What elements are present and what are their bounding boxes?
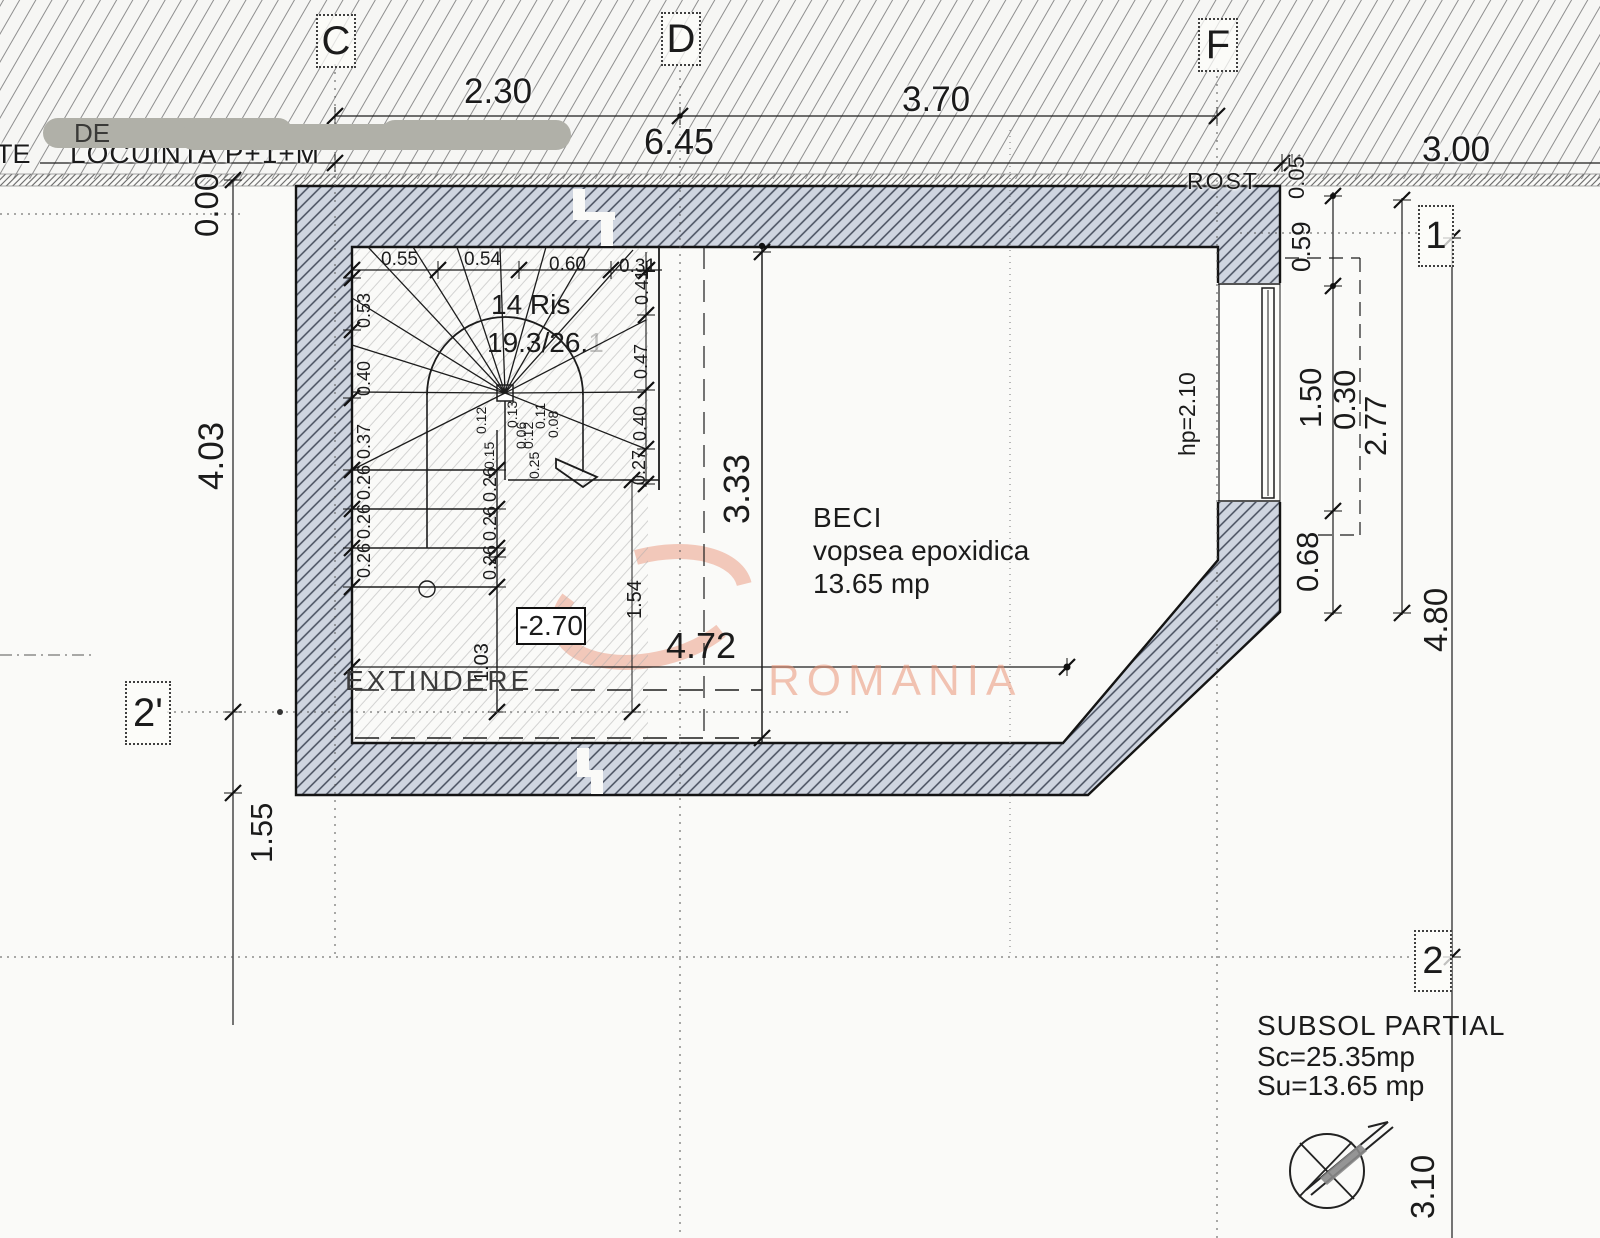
- grid-marker-2p: 2': [125, 681, 171, 745]
- dim-1-54: 1.54: [625, 580, 645, 619]
- center-dim: 0.12: [474, 407, 488, 434]
- floor-plan-page: TE LOCUINTA P+1+M 2.30 3.70 6.45 3.00 RO…: [0, 0, 1600, 1238]
- dim-6-45: 6.45: [644, 124, 714, 160]
- dim-4-03: 4.03: [194, 422, 229, 490]
- riser-dim: 0.26: [481, 467, 499, 502]
- grid-marker-d-label: D: [667, 17, 696, 62]
- dim-2-77: 2.77: [1360, 396, 1391, 456]
- basement-window: [1216, 283, 1284, 502]
- center-dim: 0.25: [527, 452, 541, 479]
- rost-joint-label: ROST: [1187, 170, 1259, 193]
- tread-dim: 0.55: [381, 250, 418, 269]
- grid-marker-d: D: [661, 12, 701, 66]
- dim-3-70: 3.70: [902, 82, 970, 117]
- dim-0-30: 0.30: [1329, 370, 1360, 430]
- level-marker-value: -2.70: [519, 612, 583, 640]
- covered-text-fragment: DE: [74, 120, 110, 146]
- north-arrow-icon: [1290, 1122, 1393, 1208]
- dim-1-55: 1.55: [246, 803, 277, 863]
- dim-1-50: 1.50: [1295, 368, 1326, 428]
- grid-marker-1-label: 1: [1425, 215, 1446, 258]
- level-marker-box: -2.70: [516, 607, 586, 645]
- riser-dim: 0.26: [355, 543, 373, 578]
- dim-4-72: 4.72: [666, 628, 736, 664]
- winder-dim: 0.47: [632, 344, 650, 379]
- riser-dim: 0.26: [355, 504, 373, 539]
- titleblock-built-area: Sc=25.35mp: [1257, 1043, 1415, 1071]
- extindere-label: EXTINDERE: [345, 667, 532, 695]
- level-0-00: 0.00: [190, 173, 223, 237]
- riser-dim: 0.26: [481, 545, 499, 580]
- stair-ratio-value: 19.3/26.: [487, 327, 588, 358]
- riser-dim: 0.26: [355, 465, 373, 500]
- tread-dim: 0.54: [464, 250, 501, 269]
- dim-3-00: 3.00: [1422, 132, 1490, 167]
- dim-3-33: 3.33: [719, 454, 755, 524]
- winder-dim: 0.41: [633, 270, 651, 305]
- dim-4-80: 4.80: [1419, 588, 1452, 652]
- room-name: BECI: [813, 504, 882, 532]
- redaction-mark: [380, 120, 571, 150]
- titleblock-usable-area: Su=13.65 mp: [1257, 1072, 1424, 1100]
- tread-dim: 0.60: [549, 255, 586, 274]
- riser-dim: 0.40: [355, 361, 373, 396]
- dim-3-10: 3.10: [1406, 1155, 1439, 1219]
- winder-dim: 0.40: [631, 406, 649, 441]
- titleblock-title: SUBSOL PARTIAL: [1257, 1012, 1505, 1040]
- stair-risers-label: 14 Ris: [491, 291, 570, 319]
- grid-marker-2: 2: [1414, 930, 1452, 992]
- grid-marker-2-label: 2: [1422, 940, 1443, 983]
- dim-2-30: 2.30: [464, 74, 532, 109]
- room-finish: vopsea epoxidica: [813, 537, 1029, 565]
- dim-0-68: 0.68: [1292, 532, 1323, 592]
- riser-dim: 0.37: [355, 424, 373, 459]
- stair-ratio-faded-digit: 1: [588, 327, 604, 358]
- romania-watermark: ROMANIA: [768, 656, 1022, 706]
- parapet-height-label: hp=2.10: [1176, 372, 1199, 456]
- riser-dim: 0.53: [355, 293, 373, 328]
- dim-0-05: 0.05: [1286, 156, 1308, 199]
- grid-marker-c: C: [316, 14, 356, 68]
- winder-dim: 0.27: [630, 450, 648, 485]
- grid-marker-2p-label: 2': [133, 691, 163, 736]
- grid-marker-1: 1: [1418, 205, 1454, 267]
- grid-marker-f: F: [1198, 18, 1238, 72]
- riser-dim: 0.26: [481, 506, 499, 541]
- dim-0-59: 0.59: [1288, 221, 1314, 272]
- center-dim: 0.15: [482, 442, 496, 469]
- stair-ratio-label: 19.3/26.1: [487, 329, 604, 357]
- edge-text-fragment: TE: [0, 141, 31, 168]
- grid-marker-c-label: C: [322, 19, 351, 64]
- center-dim: 0.08: [546, 411, 560, 438]
- grid-marker-f-label: F: [1206, 23, 1230, 68]
- room-area: 13.65 mp: [813, 570, 930, 598]
